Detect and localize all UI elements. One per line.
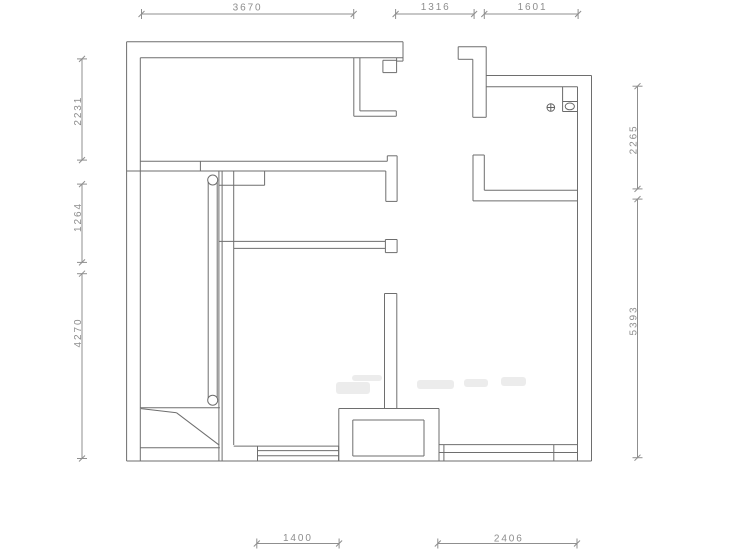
- svg-text:2406: 2406: [494, 534, 524, 545]
- svg-text:4270: 4270: [73, 318, 84, 348]
- svg-text:5393: 5393: [628, 306, 639, 336]
- svg-text:1601: 1601: [518, 2, 548, 13]
- svg-text:1316: 1316: [421, 2, 451, 13]
- svg-text:1264: 1264: [73, 202, 84, 232]
- svg-text:3670: 3670: [233, 2, 263, 13]
- svg-text:2265: 2265: [628, 124, 639, 154]
- svg-text:2231: 2231: [73, 96, 84, 126]
- svg-text:1400: 1400: [283, 533, 313, 544]
